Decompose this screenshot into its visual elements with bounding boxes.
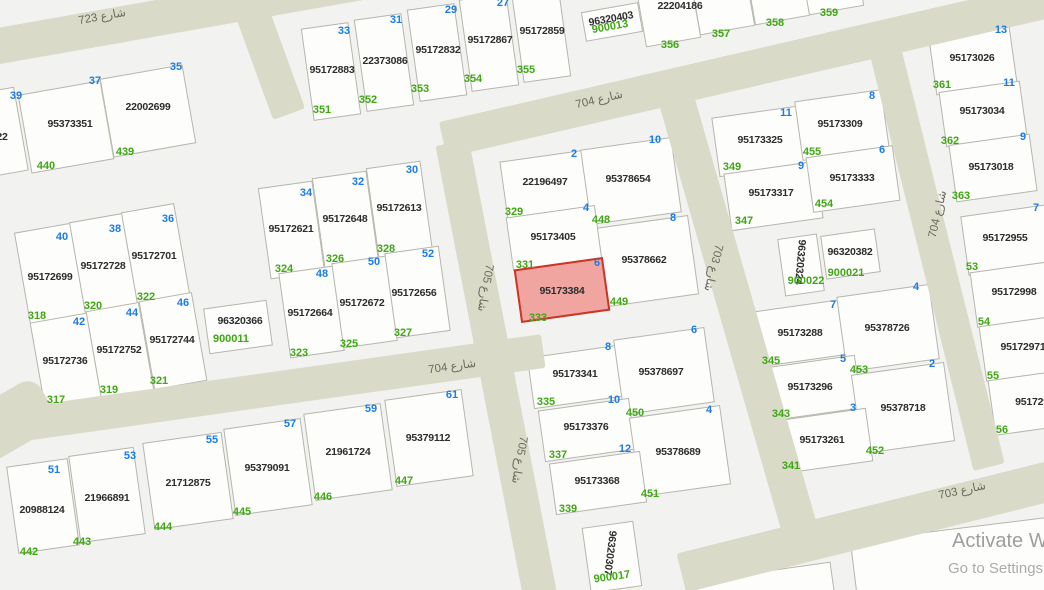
plot-number-blue: 36: [162, 213, 174, 225]
plot-number-green: 318: [28, 310, 46, 322]
street-band-723-branch: [233, 0, 304, 120]
plot-number-blue: 53: [124, 450, 136, 462]
plot-number-green: 337: [549, 449, 567, 461]
parcel-id-label: 95173333: [829, 172, 874, 184]
plot-number-green: 341: [782, 460, 800, 472]
plot-number-green: 321: [150, 375, 168, 387]
parcel-id-label: 95172867: [467, 34, 512, 46]
parcel-id-label: 95172621: [268, 223, 313, 235]
parcel-id-label: 95173034: [959, 105, 1004, 117]
parcel-id-label: 95379091: [244, 462, 289, 474]
parcel-id-label: 95173288: [777, 327, 822, 339]
parcel-id-label: 95173325: [737, 134, 782, 146]
parcel-id-label: 95373351: [47, 118, 92, 130]
plot-number-blue: 5: [840, 353, 846, 365]
plot-number-green: 54: [978, 316, 990, 328]
parcel-id-label: 95173341: [552, 368, 597, 380]
plot-number-green: 317: [47, 394, 65, 406]
plot-number-blue: 11: [780, 107, 792, 119]
plot-number-blue: 6: [879, 144, 885, 156]
plot-number-green: 351: [313, 104, 331, 116]
plot-number-blue: 10: [649, 134, 661, 146]
plot-number-green: 56: [996, 424, 1008, 436]
plot-number-green: 355: [517, 64, 535, 76]
plot-number-blue: 33: [338, 25, 350, 37]
plot-number-green: 444: [154, 521, 172, 533]
plot-number-blue: 31: [390, 14, 402, 26]
plot-number-blue: 27: [497, 0, 509, 9]
parcel-id-label: 95173384: [539, 285, 584, 297]
plot-number-green: 361: [933, 79, 951, 91]
parcel-id-label: 22204186: [657, 0, 702, 12]
plot-number-blue: 37: [89, 75, 101, 87]
plot-number-blue: 59: [365, 403, 377, 415]
plot-number-blue: 51: [48, 464, 60, 476]
parcel-id-label: 95172701: [131, 250, 176, 262]
parcel-id-label: 95172699: [27, 271, 72, 283]
watermark-settings: Go to Settings: [948, 560, 1043, 577]
parcel-id-label: 95172744: [149, 334, 194, 346]
plot-number-blue: 46: [177, 297, 189, 309]
parcel-id-label: 96320382: [827, 246, 872, 258]
plot-number-green: 454: [815, 198, 833, 210]
plot-number-green: 323: [290, 347, 308, 359]
plot-number-green: 450: [626, 407, 644, 419]
plot-number-blue: 44: [126, 307, 138, 319]
plot-number-green: 328: [377, 243, 395, 255]
parcel-id-label: 21961724: [325, 446, 370, 458]
parcel-id-label: 95172613: [376, 202, 421, 214]
parcel-id-label: 96320366: [217, 315, 262, 327]
parcel-id-label: 22373086: [362, 55, 407, 67]
plot-number-green: 363: [952, 190, 970, 202]
parcel-id-label: 95172728: [80, 260, 125, 272]
parcel-id-label: 95378726: [864, 322, 909, 334]
parcel-id-label: 95172664: [287, 307, 332, 319]
plot-number-blue: 55: [206, 434, 218, 446]
plot-number-blue: 13: [995, 24, 1007, 36]
parcel-id-label: 22: [0, 131, 8, 143]
plot-number-green: 335: [537, 396, 555, 408]
parcel-id-label: 95172955: [982, 232, 1027, 244]
parcel-id-label: 95173309: [817, 118, 862, 130]
plot-number-green: 333: [529, 312, 547, 324]
plot-number-green: 452: [866, 445, 884, 457]
plot-number-green: 349: [723, 161, 741, 173]
plot-number-blue: 52: [422, 248, 434, 260]
plot-number-blue: 30: [406, 164, 418, 176]
plot-number-blue: 9: [798, 160, 804, 172]
parcel-id-label: 95173296: [787, 381, 832, 393]
parcel-id-label: 95379112: [406, 432, 451, 444]
plot-number-green: 327: [394, 327, 412, 339]
plot-number-green: 449: [610, 296, 628, 308]
plot-number-green: 325: [340, 338, 358, 350]
watermark-activate: Activate W: [952, 530, 1044, 553]
plot-number-green: 324: [275, 263, 293, 275]
parcel-id-label: 95172656: [391, 287, 436, 299]
plot-number-green: 347: [735, 215, 753, 227]
plot-number-blue: 57: [284, 418, 296, 430]
plot-number-blue: 50: [368, 256, 380, 268]
parcel-id-label: 95173261: [799, 434, 844, 446]
plot-number-blue: 4: [913, 281, 919, 293]
map-canvas[interactable]: Activate W Go to Settings 22953733512200…: [0, 0, 1044, 590]
plot-number-blue: 35: [170, 61, 182, 73]
parcel-id-label: 95172859: [519, 25, 564, 37]
plot-number-blue: 2: [571, 148, 577, 160]
plot-number-blue: 2: [929, 358, 935, 370]
plot-number-green: 329: [505, 206, 523, 218]
plot-number-green: 320: [84, 300, 102, 312]
plot-number-green: 362: [941, 135, 959, 147]
parcel-id-label: 20988124: [19, 504, 64, 516]
plot-number-blue: 8: [670, 212, 676, 224]
plot-number-blue: 38: [109, 223, 121, 235]
plot-number-blue: 8: [605, 341, 611, 353]
parcel-id-label: 95172998: [991, 286, 1036, 298]
parcel-id-label: 951729: [1015, 396, 1044, 408]
parcel-id-label: 95173317: [748, 187, 793, 199]
parcel-id-label: 95172648: [322, 213, 367, 225]
plot-number-green: 354: [464, 73, 482, 85]
parcel-id-label: 95173376: [563, 421, 608, 433]
plot-number-blue: 42: [73, 316, 85, 328]
plot-number-blue: 7: [1033, 202, 1039, 214]
plot-number-blue: 11: [1003, 77, 1015, 89]
plot-number-blue: 39: [10, 90, 22, 102]
plot-number-green: 439: [116, 146, 134, 158]
plot-number-green: 353: [411, 83, 429, 95]
plot-number-green: 345: [762, 355, 780, 367]
parcel-id-label: 95173405: [530, 231, 575, 243]
parcel-id-label: 95173018: [968, 161, 1013, 173]
plot-number-green: 352: [359, 94, 377, 106]
plot-number-blue: 8: [869, 90, 875, 102]
plot-number-blue: 9: [1020, 131, 1026, 143]
parcel-id-label: 21712875: [165, 477, 210, 489]
plot-number-green: 326: [326, 253, 344, 265]
plot-number-blue: 10: [608, 394, 620, 406]
parcel-id-label: 95378654: [605, 173, 650, 185]
parcel-id-label: 95172883: [309, 64, 354, 76]
parcel-id-label: 22002699: [125, 101, 170, 113]
plot-number-green: 440: [37, 160, 55, 172]
plot-number-green: 446: [314, 491, 332, 503]
parcel-id-label: 95378689: [655, 446, 700, 458]
parcel-id-label: 95172672: [339, 297, 384, 309]
plot-number-green: 451: [641, 488, 659, 500]
plot-number-green: 331: [516, 259, 534, 271]
plot-number-green: 448: [592, 214, 610, 226]
plot-number-blue: 29: [445, 4, 457, 16]
parcel-id-label: 21966891: [84, 492, 129, 504]
plot-number-green: 442: [20, 546, 38, 558]
plot-number-green: 900022: [788, 275, 825, 287]
plot-number-blue: 32: [352, 176, 364, 188]
parcel-id-label: 95172971: [1000, 341, 1044, 353]
parcel-id-label: 95378662: [621, 254, 666, 266]
plot-number-blue: 3: [850, 402, 856, 414]
plot-number-green: 55: [987, 370, 999, 382]
plot-number-green: 357: [712, 28, 730, 40]
plot-number-blue: 61: [446, 389, 458, 401]
plot-number-green: 319: [100, 384, 118, 396]
plot-number-blue: 40: [56, 231, 68, 243]
plot-number-green: 453: [850, 364, 868, 376]
plot-number-green: 455: [803, 146, 821, 158]
parcel-96320366[interactable]: [203, 300, 273, 354]
parcel-id-label: 95172752: [96, 344, 141, 356]
plot-number-green: 447: [395, 475, 413, 487]
plot-number-green: 339: [559, 503, 577, 515]
plot-number-green: 356: [661, 39, 679, 51]
plot-number-green: 358: [766, 17, 784, 29]
plot-number-blue: 6: [594, 257, 600, 269]
plot-number-blue: 48: [316, 268, 328, 280]
plot-number-blue: 4: [706, 404, 712, 416]
plot-number-green: 900021: [828, 267, 865, 279]
plot-number-blue: 12: [619, 443, 631, 455]
parcel-id-label: 95172736: [42, 355, 87, 367]
parcel-id-label: 22196497: [522, 176, 567, 188]
plot-number-blue: 4: [583, 202, 589, 214]
plot-number-green: 53: [966, 261, 978, 273]
plot-number-green: 343: [772, 408, 790, 420]
plot-number-green: 359: [820, 7, 838, 19]
parcel-id-label: 95173026: [949, 52, 994, 64]
plot-number-green: 443: [73, 536, 91, 548]
parcel-id-label: 95378718: [880, 402, 925, 414]
plot-number-green: 445: [233, 506, 251, 518]
plot-number-green: 900011: [213, 333, 249, 345]
plot-number-blue: 7: [830, 299, 836, 311]
parcel-id-label: 95378697: [638, 366, 683, 378]
plot-number-blue: 6: [691, 324, 697, 336]
parcel-id-label: 95172832: [415, 44, 460, 56]
plot-number-green: 322: [137, 291, 155, 303]
plot-number-blue: 34: [300, 187, 312, 199]
parcel-id-label: 95173368: [574, 475, 619, 487]
